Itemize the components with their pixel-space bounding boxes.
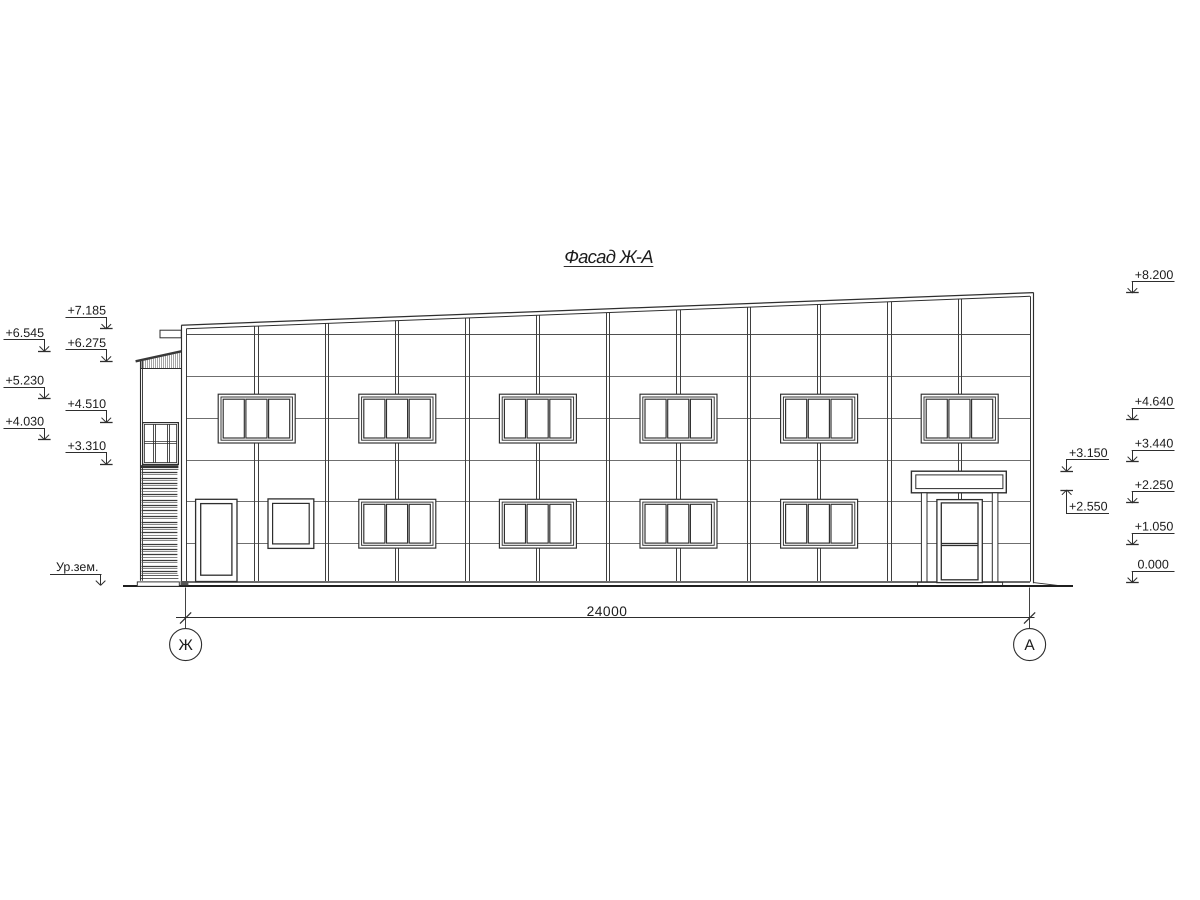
svg-text:24000: 24000 (587, 604, 628, 619)
svg-text:+4.030: +4.030 (6, 414, 45, 428)
svg-text:+3.440: +3.440 (1135, 436, 1174, 450)
svg-text:+4.510: +4.510 (68, 397, 107, 411)
svg-text:+6.275: +6.275 (68, 336, 107, 350)
svg-text:+4.640: +4.640 (1135, 395, 1174, 409)
svg-text:+5.230: +5.230 (6, 373, 45, 387)
svg-text:0.000: 0.000 (1138, 557, 1169, 571)
svg-text:А: А (1024, 637, 1035, 654)
svg-text:Ж: Ж (178, 637, 193, 654)
svg-text:+7.185: +7.185 (68, 304, 107, 318)
svg-text:+8.200: +8.200 (1135, 268, 1174, 282)
svg-text:+2.250: +2.250 (1135, 478, 1174, 492)
svg-text:+6.545: +6.545 (6, 326, 45, 340)
svg-text:Фасад Ж-А: Фасад Ж-А (564, 246, 653, 267)
svg-text:+3.310: +3.310 (68, 439, 107, 453)
svg-text:+1.050: +1.050 (1135, 520, 1174, 534)
svg-text:Ур.зем.: Ур.зем. (56, 560, 98, 574)
svg-text:+3.150: +3.150 (1069, 446, 1108, 460)
svg-text:+2.550: +2.550 (1069, 500, 1108, 514)
